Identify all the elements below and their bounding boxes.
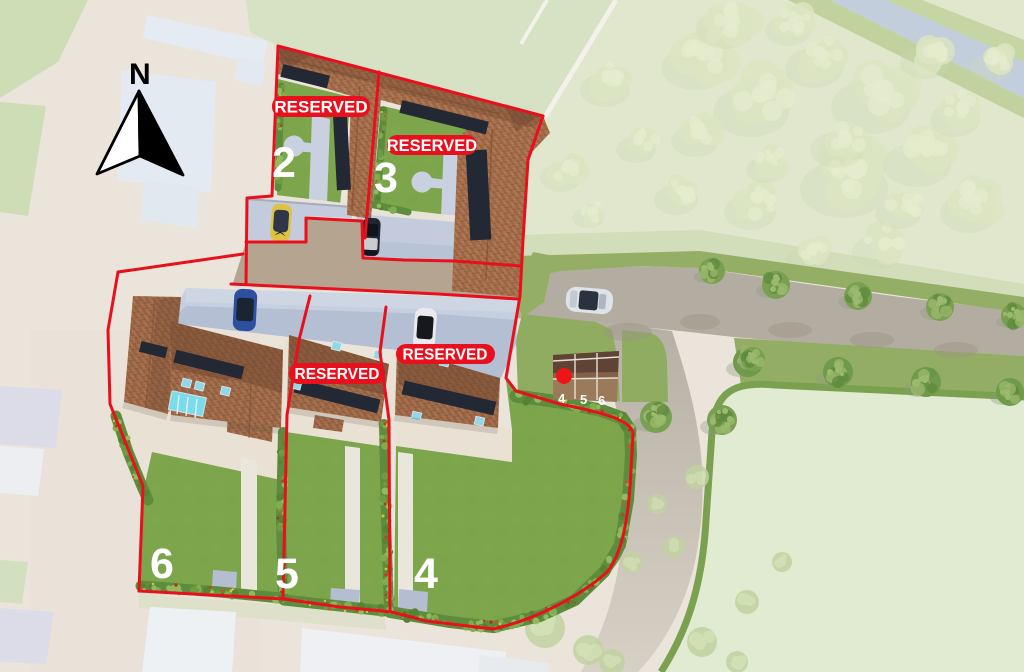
svg-text:6: 6 <box>150 540 174 588</box>
svg-text:2: 2 <box>272 139 296 187</box>
svg-text:RESERVED: RESERVED <box>387 137 478 155</box>
svg-text:5: 5 <box>275 550 299 598</box>
svg-text:4: 4 <box>414 550 438 598</box>
svg-text:RESERVED: RESERVED <box>274 98 367 117</box>
svg-text:RESERVED: RESERVED <box>403 347 488 364</box>
svg-text:3: 3 <box>374 154 398 202</box>
svg-text:6: 6 <box>598 393 605 408</box>
svg-text:5: 5 <box>580 392 587 407</box>
svg-text:RESERVED: RESERVED <box>295 366 380 383</box>
svg-text:N: N <box>129 58 151 91</box>
